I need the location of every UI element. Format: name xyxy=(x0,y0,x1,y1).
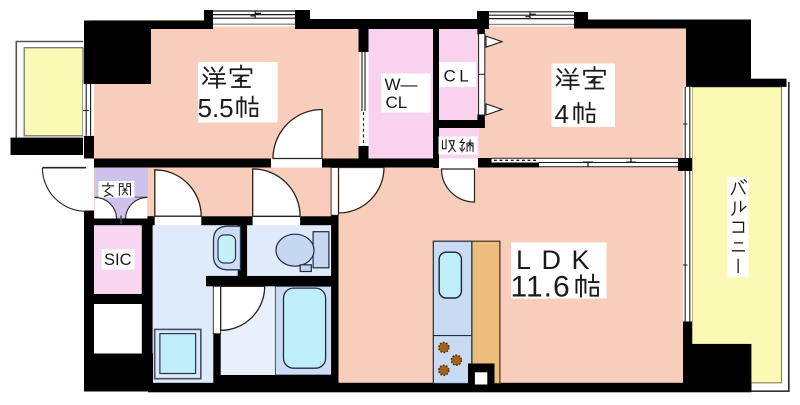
svg-text:CL: CL xyxy=(444,67,473,86)
svg-text:11.6: 11.6 xyxy=(511,271,571,304)
svg-text:4: 4 xyxy=(555,99,569,129)
svg-text:5.5: 5.5 xyxy=(198,93,234,123)
svg-text:W—: W— xyxy=(385,75,418,94)
svg-text:CL: CL xyxy=(386,93,408,112)
svg-text:SIC: SIC xyxy=(104,251,132,269)
